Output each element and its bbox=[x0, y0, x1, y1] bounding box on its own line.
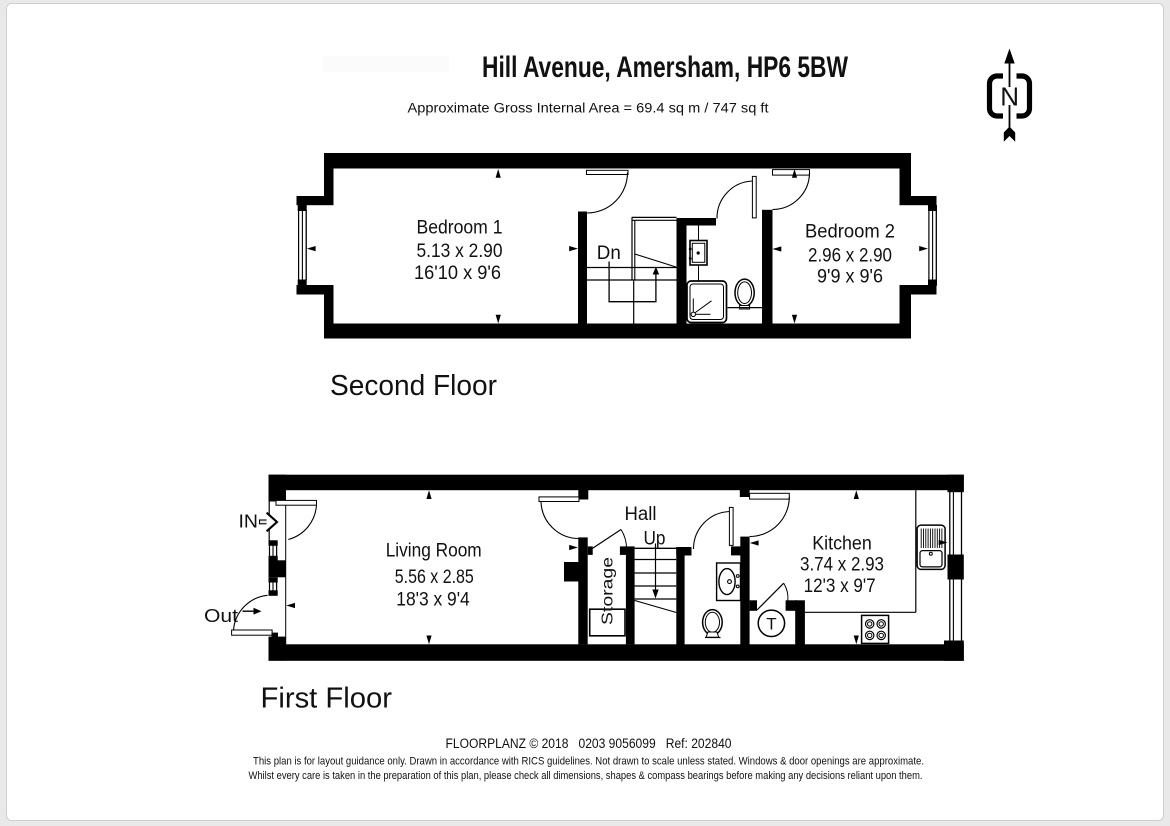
svg-text:T: T bbox=[766, 615, 776, 634]
svg-text:3.74 x 2.93: 3.74 x 2.93 bbox=[800, 554, 884, 575]
svg-text:Hill Avenue, Amersham, HP6 5BW: Hill Avenue, Amersham, HP6 5BW bbox=[482, 51, 849, 84]
svg-text:Approximate Gross Internal Are: Approximate Gross Internal Area = 69.4 s… bbox=[408, 101, 769, 116]
svg-text:2.96 x 2.90: 2.96 x 2.90 bbox=[808, 246, 892, 267]
svg-text:5.13 x 2.90: 5.13 x 2.90 bbox=[417, 241, 503, 262]
svg-text:Out: Out bbox=[204, 606, 238, 626]
svg-text:Hall: Hall bbox=[625, 504, 657, 525]
svg-text:18'3 x 9'4: 18'3 x 9'4 bbox=[396, 590, 470, 611]
svg-text:16'10 x 9'6: 16'10 x 9'6 bbox=[414, 263, 501, 284]
svg-text:5.56 x 2.85: 5.56 x 2.85 bbox=[395, 567, 474, 588]
svg-text:12'3 x 9'7: 12'3 x 9'7 bbox=[804, 576, 876, 597]
svg-text:IN: IN bbox=[239, 511, 259, 531]
svg-text:First Floor: First Floor bbox=[261, 683, 393, 715]
svg-text:Storage: Storage bbox=[600, 557, 617, 625]
svg-text:N: N bbox=[1000, 82, 1019, 112]
svg-text:Bedroom 1: Bedroom 1 bbox=[417, 218, 503, 239]
svg-text:Bedroom 2: Bedroom 2 bbox=[805, 222, 895, 243]
svg-text:Living Room: Living Room bbox=[386, 540, 482, 561]
svg-text:This plan is for layout guidan: This plan is for layout guidance only. D… bbox=[253, 756, 924, 768]
svg-text:9'9 x 9'6: 9'9 x 9'6 bbox=[817, 267, 883, 288]
svg-text:Kitchen: Kitchen bbox=[812, 534, 872, 555]
svg-text:FLOORPLANZ © 2018 0203 90560: FLOORPLANZ © 2018 0203 9056099 Ref: 2028… bbox=[446, 736, 732, 751]
svg-text:Second Floor: Second Floor bbox=[330, 370, 497, 402]
svg-text:Whilst every care is taken in: Whilst every care is taken in the prepar… bbox=[249, 770, 923, 782]
svg-text:Dn: Dn bbox=[597, 243, 621, 264]
svg-text:Up: Up bbox=[644, 528, 666, 549]
